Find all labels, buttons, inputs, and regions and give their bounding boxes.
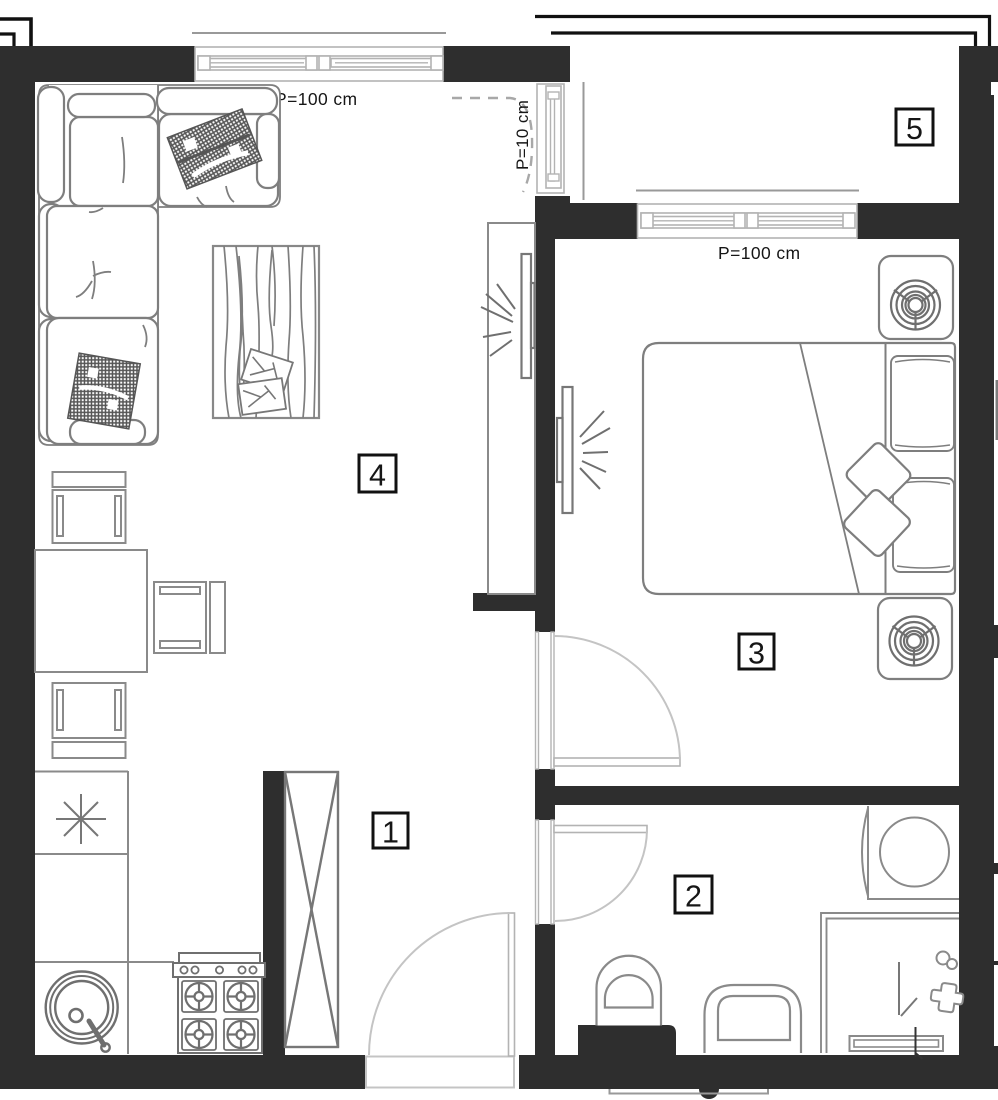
svg-text:2: 2	[685, 880, 702, 914]
svg-text:5: 5	[906, 112, 923, 146]
svg-text:P=10 cm: P=10 cm	[513, 100, 532, 170]
svg-text:P=100 cm: P=100 cm	[275, 89, 357, 109]
svg-text:4: 4	[369, 459, 386, 493]
svg-text:P=100 cm: P=100 cm	[718, 243, 800, 263]
svg-text:1: 1	[382, 816, 399, 850]
svg-text:3: 3	[748, 637, 765, 671]
